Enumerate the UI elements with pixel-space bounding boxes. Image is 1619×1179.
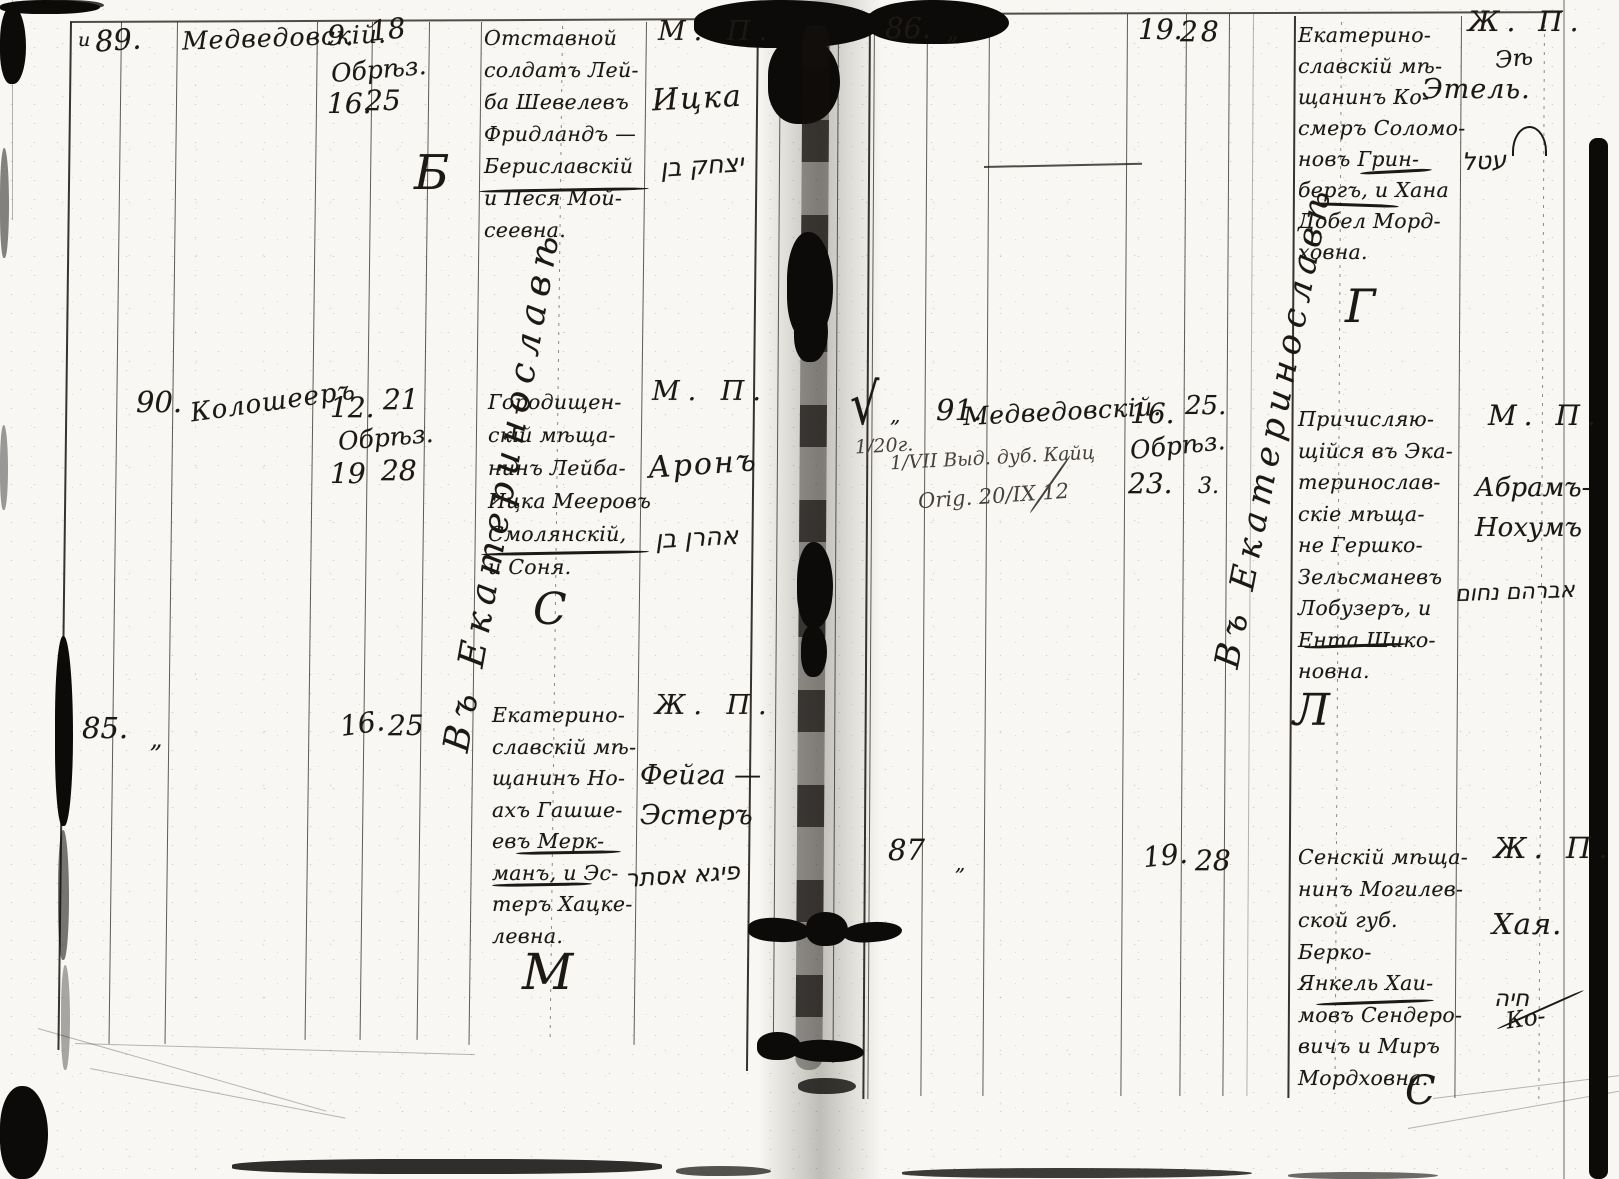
entry-91-hebrew-note: אברהם נחום — [1455, 578, 1575, 607]
entry-90-event-day-julian: 19 — [330, 458, 366, 490]
binding-blot — [801, 625, 827, 677]
entry-91-event-day-gregorian: 3. — [1198, 474, 1219, 499]
ink-stain — [55, 636, 73, 826]
entry-90-number: 90. — [136, 386, 182, 419]
ruled-line — [982, 14, 990, 1096]
entry-91-ditto-mark: „ — [890, 404, 900, 427]
entry-89-birth-day-gregorian: 18 — [368, 12, 407, 48]
entry-87-parents: Сенскій мѣща- нинъ Могилев- ской губ. Бе… — [1298, 842, 1473, 1094]
entry-85-clerk-letter: М — [522, 944, 573, 1002]
entry-87-clerk-letter: С — [1405, 1068, 1436, 1114]
stitch-mark — [806, 912, 848, 946]
entry-91-event-day-julian: 23. — [1128, 468, 1173, 500]
entry-85-number: 85. — [82, 712, 128, 745]
entry-89-parents: Отставной солдатъ Лей- ба Шевелевъ Фридл… — [484, 22, 659, 246]
ruled-line — [109, 22, 122, 1044]
register-scan: и 89. Медведовскій. 9. 18 Обрѣз. 16. 25 … — [0, 0, 1619, 1179]
entry-85-event-day-gregorian: 25 — [388, 710, 424, 742]
entry-87-event-day-julian: 19. — [1141, 838, 1189, 875]
entry-85-hebrew-note: פיגא אסתר — [624, 858, 741, 894]
entry-90-birth-day-julian: 12. — [330, 392, 375, 424]
entry-86-ditto-mark: „ — [947, 20, 958, 45]
entry-85-child-name: Фейга — Эстеръ — [640, 756, 761, 836]
ink-stain — [61, 965, 70, 1070]
entry-85-sex-mark: Ж. П. — [655, 690, 775, 721]
entry-90-event-label: Обрѣз. — [337, 420, 435, 457]
ink-stain — [676, 1166, 771, 1176]
ink-stain — [0, 148, 9, 258]
entry-91-birth-day-gregorian: 25. — [1185, 392, 1226, 422]
entry-86-event-day-julian: 19. — [1138, 14, 1183, 46]
ink-stain — [232, 1159, 662, 1174]
ink-stain — [34, 0, 104, 10]
ink-stain — [0, 6, 26, 84]
entry-91-child-name: Абрамъ- Нохумъ — [1475, 468, 1590, 548]
ruled-line — [305, 22, 318, 1040]
page-fold-line — [38, 1028, 327, 1112]
entry-90-birth-day-gregorian: 21 — [383, 384, 419, 416]
entry-89-sex-mark: М. П. — [658, 16, 775, 47]
entry-87-ditto-mark: „ — [955, 852, 965, 875]
entry-89-child-name: Ицка — [651, 80, 744, 119]
entry-86-event-day-gregorian: 28 — [1180, 16, 1222, 48]
entry-86-clerk-letter: Г — [1345, 280, 1375, 333]
ink-stain — [58, 830, 69, 960]
entry-85-ditto-mark: „ — [150, 726, 162, 754]
entry-86-name-scribble: Эѣ — [1494, 44, 1534, 74]
binding-blot — [797, 542, 833, 628]
bell-doodle — [1512, 126, 1547, 156]
entry-90-child-name: Аронъ — [647, 444, 759, 486]
page-fold-line — [90, 1068, 345, 1119]
ruled-line — [1179, 14, 1187, 1096]
entry-91-check-mark: √ — [850, 371, 879, 437]
ink-stain — [1288, 1172, 1438, 1179]
ruled-line — [920, 14, 928, 1096]
entry-89-number: 89. — [94, 22, 142, 58]
entry-91-pencil-note-3: Orig. 20/IX 12 — [917, 479, 1070, 514]
entry-91-pencil-note-2: 1/VII Выд. дуб. Кайц — [890, 443, 1096, 476]
entry-90-sex-mark: М. П. — [652, 376, 769, 407]
entry-89-surname: Медведовскій. — [182, 20, 388, 56]
scan-edge-stain — [1589, 138, 1608, 1179]
ink-stain — [0, 1086, 48, 1179]
entry-86-number: 86. — [885, 12, 931, 45]
entry-90-clerk-letter: С — [533, 585, 567, 636]
entry-87-number: 87 — [888, 834, 925, 867]
ink-stain — [902, 1168, 1252, 1178]
entry-91-event-label: Обрѣз. — [1129, 427, 1227, 466]
ink-stain — [0, 425, 8, 510]
entry-90-hebrew-note: אהרן בן — [654, 522, 739, 555]
ruled-line — [1120, 14, 1128, 1096]
ruled-line — [165, 22, 178, 1044]
entry-89-hebrew-note: יצחק בן — [659, 149, 745, 184]
entry-86-sex-mark: Ж. П. — [1468, 6, 1586, 38]
entry-87-sex-mark: Ж. П. — [1494, 832, 1615, 865]
entry-86-hebrew-note: עטל — [1461, 147, 1507, 177]
stitch-mark — [798, 1078, 856, 1094]
entry-89-event-day-gregorian: 25 — [365, 85, 401, 117]
entry-91-sex-mark: М. П. — [1488, 400, 1603, 432]
binding-blot — [794, 300, 828, 362]
entry-89-birth-day-julian: 9. — [327, 20, 354, 52]
entry-91-clerk-letter: Л — [1293, 686, 1330, 737]
entry-90-event-day-gregorian: 28 — [381, 455, 417, 487]
entry-86-child-name: Этель. — [1422, 74, 1531, 105]
entry-89-clerk-letter: Б — [414, 146, 449, 201]
ruled-line — [1287, 16, 1296, 1098]
page-fold-line — [75, 1043, 475, 1055]
entry-91-birth-day-julian: 16. — [1130, 398, 1175, 430]
ruled-line — [360, 22, 373, 1040]
entry-85-event-day-julian: 16. — [338, 705, 387, 743]
entry-87-event-day-gregorian: 28 — [1195, 845, 1231, 877]
margin-mark: и — [78, 30, 90, 52]
ink-dash — [984, 163, 1142, 168]
entry-87-child-name: Хая. — [1492, 908, 1562, 941]
